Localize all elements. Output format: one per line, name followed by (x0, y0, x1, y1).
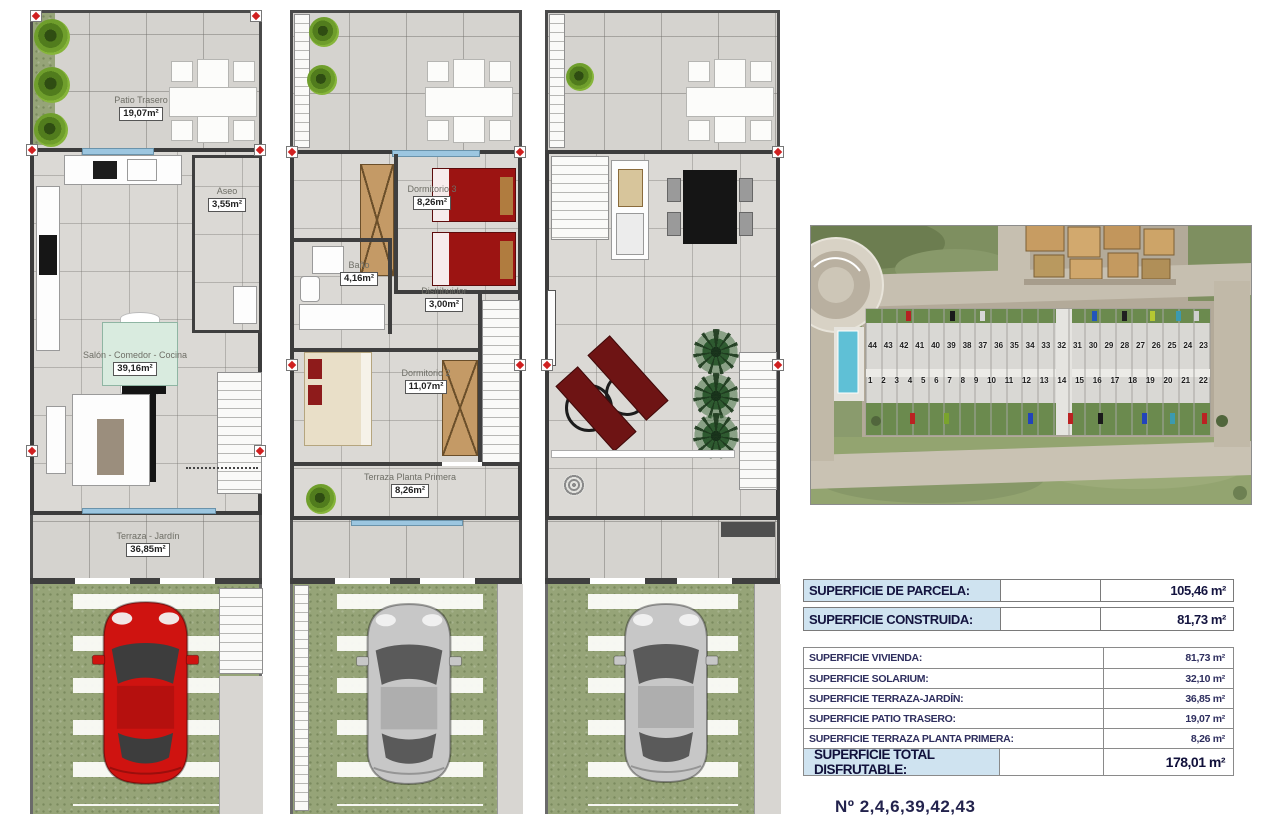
house-number: 27 (1136, 341, 1145, 350)
pillow (308, 385, 322, 405)
house-number: 2 (881, 376, 885, 385)
house-number: 12 (1022, 376, 1031, 385)
plant-icon (309, 17, 339, 47)
chair-icon (739, 212, 753, 236)
side-walkway (294, 585, 309, 811)
house-number: 6 (934, 376, 938, 385)
upper-terrace (545, 10, 780, 150)
house-number: 29 (1104, 341, 1113, 350)
row-value: 105,46 m² (1101, 583, 1233, 598)
window (392, 150, 480, 157)
palm-plant-icon (693, 329, 739, 375)
porch (290, 520, 522, 578)
row-superficie-construida: SUPERFICIE CONSTRUIDA: 81,73 m² (803, 607, 1234, 631)
house-number: 9 (974, 376, 978, 385)
sliding-door (82, 508, 216, 514)
room-label-patio-trasero: Patio Trasero 19,07m² (85, 95, 197, 121)
ground-floor-interior: Aseo 3,55m² Salón - Comedor - Cocina 39,… (30, 148, 262, 515)
plan-solarium (545, 10, 780, 814)
driveway (290, 584, 522, 814)
solarium-interior (545, 150, 780, 520)
washbasin-icon (233, 286, 257, 324)
corner-marker (514, 359, 526, 371)
kitchen-counter-left (36, 186, 60, 351)
table-row: SUPERFICIE TERRAZA PLANTA PRIMERA: 8,26 … (804, 728, 1233, 748)
house-number: 18 (1128, 376, 1137, 385)
room-label-dormitorio2: Dormitorio 2 11,07m² (376, 368, 476, 394)
patio-table (425, 59, 513, 143)
aerial-photo: 4443424140393837363534333231302928272625… (810, 225, 1252, 505)
aseo-room: Aseo 3,55m² (192, 155, 262, 333)
upper-terrace (290, 10, 522, 150)
table-row-total: SUPERFICIE TOTAL DISFRUTABLE: 178,01 m² (804, 748, 1233, 775)
house-number: 32 (1057, 341, 1066, 350)
pillow (308, 359, 322, 379)
house-number: 8 (961, 376, 965, 385)
dashed-line (186, 467, 258, 469)
room-label-salon: Salón - Comedor - Cocina 39,16m² (62, 350, 208, 376)
patio-table (686, 59, 774, 143)
house-number: 20 (1164, 376, 1173, 385)
house-number: 30 (1089, 341, 1098, 350)
window (82, 148, 154, 155)
surface-detail-table: SUPERFICIE VIVIENDA: 81,73 m² SUPERFICIE… (803, 647, 1234, 776)
corner-marker (26, 445, 38, 457)
window (351, 520, 463, 526)
exterior-stairs (219, 588, 263, 674)
row-label: SUPERFICIE CONSTRUIDA: (804, 608, 1001, 630)
gray-car (610, 598, 722, 788)
room-label-terraza-planta-primera: Terraza Planta Primera 8,26m² (336, 472, 484, 498)
table-row: SUPERFICIE PATIO TRASERO: 19,07 m² (804, 708, 1233, 728)
terraza-jardin: Terraza - Jardín 36,85m² (30, 515, 262, 578)
house-number: 14 (1057, 376, 1066, 385)
single-bed (432, 232, 516, 286)
cooktop-icon (39, 235, 57, 275)
chair-icon (739, 178, 753, 202)
plant-icon (34, 19, 70, 55)
dark-block (721, 522, 775, 537)
house-number: 36 (994, 341, 1003, 350)
tv-icon (122, 386, 166, 394)
house-number: 4 (908, 376, 912, 385)
corner-marker (30, 10, 42, 22)
house-numbers-top: 4443424140393837363534333231302928272625… (868, 341, 1208, 350)
corner-marker (254, 445, 266, 457)
house-number: 23 (1199, 341, 1208, 350)
plan-ground-floor: Patio Trasero 19,07m² Aseo 3,55m² (30, 10, 262, 814)
house-number: 38 (963, 341, 972, 350)
house-number: 44 (868, 341, 877, 350)
house-number: 17 (1110, 376, 1119, 385)
house-number: 10 (987, 376, 996, 385)
house-number: 33 (1041, 341, 1050, 350)
house-number: 19 (1146, 376, 1155, 385)
house-number: 37 (978, 341, 987, 350)
house-number: 15 (1075, 376, 1084, 385)
table-row: SUPERFICIE TERRAZA-JARDÍN: 36,85 m² (804, 688, 1233, 708)
house-number: 43 (884, 341, 893, 350)
house-number: 35 (1010, 341, 1019, 350)
window (547, 290, 556, 366)
tv-unit (150, 394, 156, 482)
driveway (545, 584, 780, 814)
plant-icon (566, 63, 594, 91)
house-number: 34 (1026, 341, 1035, 350)
plant-icon (34, 67, 70, 103)
toilet-icon (300, 276, 320, 302)
corner-marker (286, 146, 298, 158)
row-superficie-parcela: SUPERFICIE DE PARCELA: 105,46 m² (803, 579, 1234, 602)
pillow (500, 241, 513, 279)
plant-icon (34, 113, 68, 147)
house-number: 13 (1040, 376, 1049, 385)
house-number: 5 (921, 376, 925, 385)
corner-marker (514, 146, 526, 158)
corner-marker (254, 144, 266, 156)
corner-marker (772, 359, 784, 371)
room-label-dormitorio3: Dormitorio 3 8,26m² (382, 184, 482, 210)
kitchen-counter (64, 155, 182, 185)
chair-icon (667, 212, 681, 236)
house-number: 21 (1181, 376, 1190, 385)
aerial-map (810, 225, 1252, 505)
red-car (88, 596, 203, 790)
house-number: 1 (868, 376, 872, 385)
room-label-distribuidor: Distribuidor 3,00m² (394, 286, 494, 312)
appliance-icon (618, 169, 643, 207)
house-numbers-bottom: 12345678910111213141516171819202122 (868, 376, 1208, 385)
house-number: 39 (947, 341, 956, 350)
porch (545, 520, 780, 578)
room-label-terraza-jardin: Terraza - Jardín 36,85m² (88, 531, 208, 557)
house-number: 28 (1120, 341, 1129, 350)
stairwell (551, 156, 609, 240)
corner-marker (286, 359, 298, 371)
sofa (72, 394, 150, 486)
table-row: SUPERFICIE SOLARIUM: 32,10 m² (804, 668, 1233, 688)
patio-trasero: Patio Trasero 19,07m² (30, 10, 262, 148)
chair-icon (667, 178, 681, 202)
summer-kitchen (611, 160, 649, 260)
house-number: 7 (947, 376, 951, 385)
stairs (217, 372, 262, 494)
paved-area (754, 584, 781, 814)
house-number: 11 (1005, 376, 1013, 385)
driveway (30, 584, 262, 814)
row-label: SUPERFICIE DE PARCELA: (804, 580, 1001, 601)
stairs (739, 352, 777, 490)
corner-marker (250, 10, 262, 22)
double-bed (304, 352, 372, 446)
dining-table (683, 170, 737, 244)
sofa-chaise (97, 419, 124, 475)
row-value: 81,73 m² (1101, 612, 1233, 627)
corner-marker (541, 359, 553, 371)
side-passage (549, 14, 565, 148)
stairs (482, 300, 520, 464)
paved-area (219, 676, 263, 814)
plant-icon (307, 65, 337, 95)
corner-marker (26, 144, 38, 156)
table-row: SUPERFICIE VIVIENDA: 81,73 m² (804, 648, 1233, 668)
house-number: 42 (900, 341, 909, 350)
plant-icon (306, 484, 336, 514)
house-number: 41 (915, 341, 924, 350)
sink-icon (616, 213, 644, 255)
bathtub-icon (299, 304, 385, 330)
first-floor-interior: Dormitorio 3 8,26m² Baño 4,16m² Distribu… (290, 150, 522, 520)
oven-icon (93, 161, 117, 179)
paved-area (497, 584, 523, 814)
plan-first-floor: Dormitorio 3 8,26m² Baño 4,16m² Distribu… (290, 10, 522, 814)
corner-marker (772, 146, 784, 158)
gray-car (353, 598, 465, 790)
house-number: 3 (894, 376, 898, 385)
house-number: 24 (1183, 341, 1192, 350)
floorplan-sheet: Patio Trasero 19,07m² Aseo 3,55m² (0, 0, 1280, 820)
sink-icon (127, 159, 157, 181)
house-number: 40 (931, 341, 940, 350)
house-number: 31 (1073, 341, 1082, 350)
house-number: 22 (1199, 376, 1208, 385)
room-label-aseo: Aseo 3,55m² (197, 186, 257, 212)
house-number: 16 (1093, 376, 1102, 385)
house-number: 25 (1168, 341, 1177, 350)
townhouse-row (834, 309, 1210, 435)
parapet-wall (551, 450, 735, 458)
pillow (500, 177, 513, 215)
sideboard (46, 406, 66, 474)
room-label-bano: Baño 4,16m² (322, 260, 396, 286)
house-number: 26 (1152, 341, 1161, 350)
plant-pot-icon (563, 474, 585, 496)
plot-numbers-label: Nº 2,4,6,39,42,43 (835, 797, 975, 817)
